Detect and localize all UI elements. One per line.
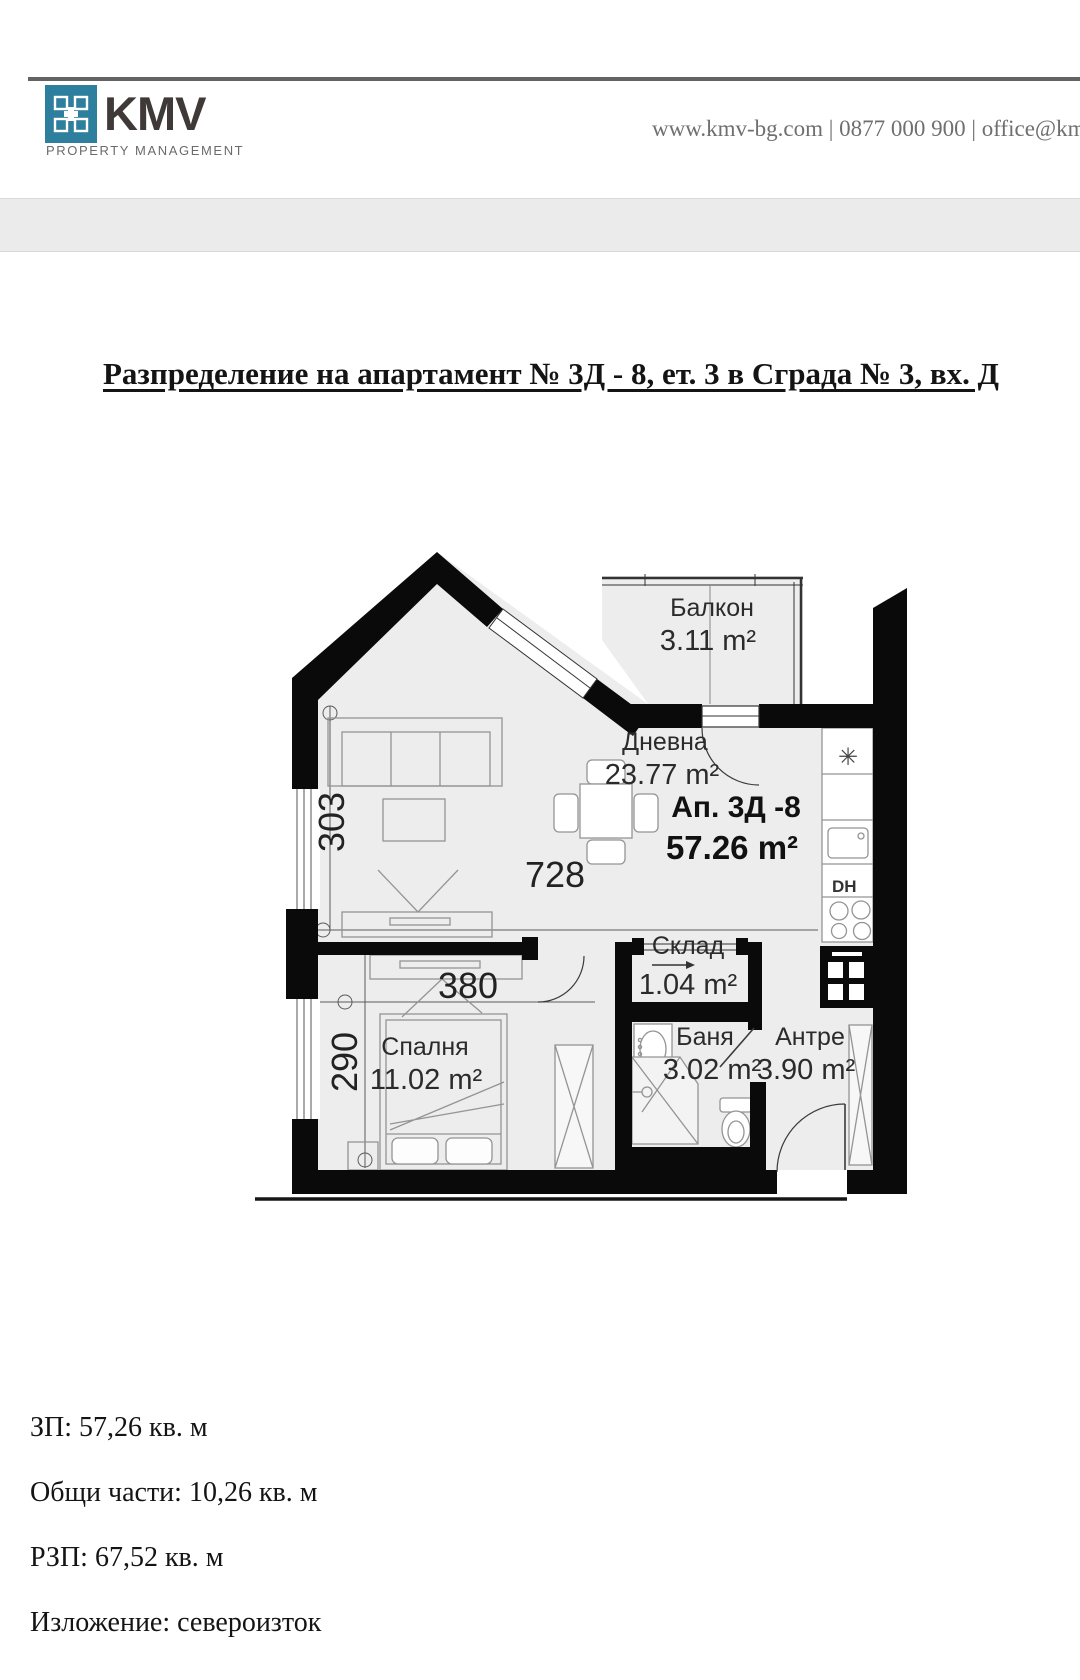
summary-exposure: Изложение: североизток xyxy=(30,1607,321,1639)
dishwasher-icon: DH xyxy=(832,877,857,896)
room-area-bath: 3.02 m² xyxy=(663,1054,762,1086)
floor-plan-drawing: ✳ DH xyxy=(250,512,910,1212)
summary-zp: ЗП: 57,26 кв. м xyxy=(30,1412,208,1444)
vent-icon: ✳ xyxy=(838,744,858,771)
brand-tagline: PROPERTY MANAGEMENT xyxy=(46,143,244,158)
brand-name: KMV xyxy=(104,86,205,141)
dim-bedroom-width: 380 xyxy=(438,965,498,1006)
unit-label: Ап. 3Д -8 xyxy=(671,791,801,824)
room-area-bedroom: 11.02 m² xyxy=(370,1064,483,1096)
room-name-bath: Баня xyxy=(676,1023,734,1051)
room-area-balcony: 3.11 m² xyxy=(660,625,757,657)
summary-common: Общи части: 10,26 кв. м xyxy=(30,1477,318,1509)
logo-grid-icon xyxy=(51,92,91,136)
header-rule xyxy=(28,77,1080,81)
room-area-storage: 1.04 m² xyxy=(639,969,738,1001)
summary-rzp: РЗП: 67,52 кв. м xyxy=(30,1542,223,1574)
room-name-hall: Антре xyxy=(775,1023,845,1051)
room-name-bedroom: Спалня xyxy=(381,1033,468,1061)
unit-area: 57.26 m² xyxy=(666,829,798,866)
dim-living-width: 728 xyxy=(525,854,585,895)
room-name-storage: Склад xyxy=(652,932,725,960)
kmv-logo-icon xyxy=(45,85,97,143)
room-area-hall: 3.90 m² xyxy=(757,1054,856,1086)
header-contact: www.kmv-bg.com | 0877 000 900 | office@k… xyxy=(652,116,1080,142)
room-name-living: Дневна xyxy=(622,728,708,756)
header-band xyxy=(0,198,1080,252)
floor-plan: ✳ DH xyxy=(250,512,910,1212)
dim-bedroom-height: 290 xyxy=(324,1032,365,1092)
room-area-living: 23.77 m² xyxy=(605,759,720,791)
room-name-balcony: Балкон xyxy=(670,594,754,622)
page-title: Разпределение на апартамент № 3Д - 8, ет… xyxy=(103,356,1080,392)
dim-living-height: 303 xyxy=(311,792,352,852)
